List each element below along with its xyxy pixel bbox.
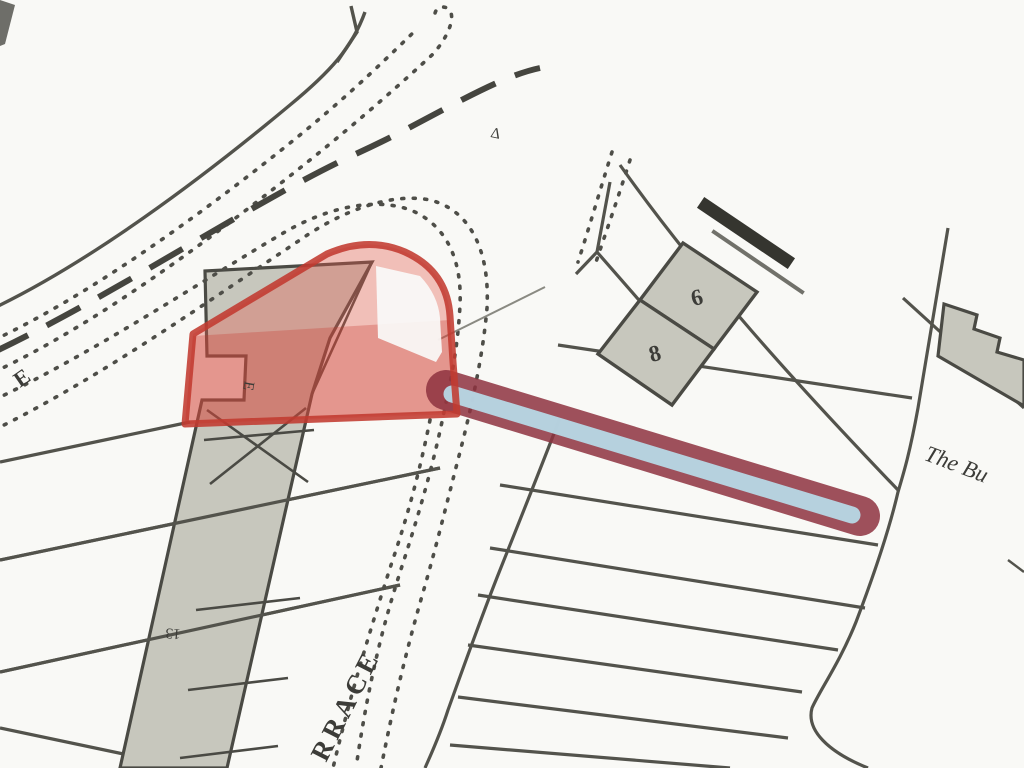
map-canvas: E Δ E 13 RRACE 6 8 The Bu <box>0 0 1024 768</box>
house-number-13: 13 <box>165 624 181 641</box>
scanned-map-page: E Δ E 13 RRACE 6 8 The Bu <box>0 0 1024 768</box>
